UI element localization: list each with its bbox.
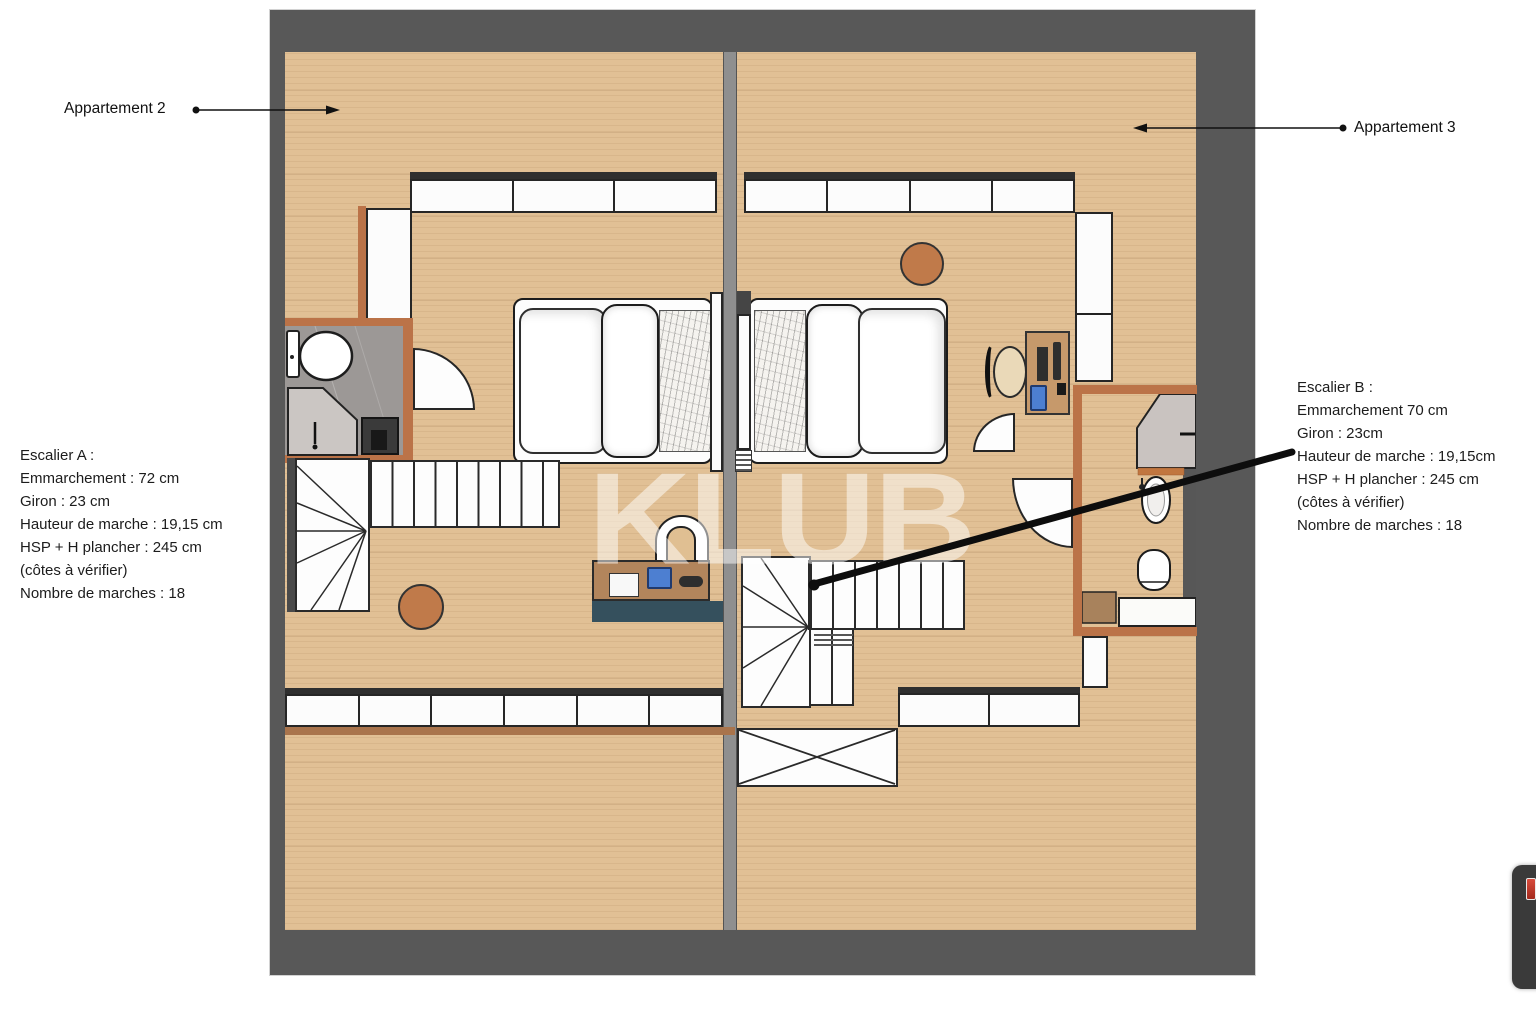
stair-b-line: Emmarchement 70 cm [1297, 399, 1495, 422]
wardrobe-box [989, 693, 1080, 727]
wardrobe-box [898, 693, 989, 727]
desk-apartment2 [592, 560, 710, 601]
bathroom-b-wall-top [1073, 385, 1197, 394]
bathroom-b [1082, 394, 1196, 627]
stair-b-lower-steps [809, 628, 854, 706]
duvet [858, 308, 946, 454]
wardrobe-box [614, 179, 717, 213]
stair-b-line: HSP + H plancher : 245 cm [1297, 468, 1495, 491]
stair-b-handrail [814, 633, 853, 646]
stair-a-line: Nombre de marches : 18 [20, 582, 223, 605]
stair-b-title: Escalier B : [1297, 376, 1495, 399]
wardrobe-box [504, 694, 577, 727]
bathroom-b-door-leaf [1082, 636, 1108, 688]
leader-dot [1340, 125, 1347, 132]
desk-shelf [1053, 342, 1061, 380]
wardrobe-base-strip [285, 727, 735, 735]
headboard-panel-right [737, 314, 751, 450]
bathroom-a-wall-top [285, 318, 412, 326]
speaker [1057, 383, 1066, 395]
stair-a-wall [287, 458, 295, 612]
desk-apartment3 [1025, 331, 1070, 415]
wardrobe-box [513, 179, 615, 213]
wardrobe-box [649, 694, 723, 727]
toilet [1138, 550, 1170, 590]
stair-a-line: Emmarchement : 72 cm [20, 467, 223, 490]
wardrobe-row-apartment2-top [410, 179, 717, 213]
wardrobe-row-apartment3-top [744, 179, 1075, 213]
toilet [300, 332, 352, 380]
apartment3-label: Appartement 3 [1354, 119, 1456, 137]
stair-b-winder [741, 556, 811, 708]
wardrobe-top-edge [744, 172, 1075, 179]
wardrobe-top-edge [410, 172, 717, 179]
bathroom-a [285, 326, 405, 456]
desk-rug [592, 601, 723, 622]
stair-a-title: Escalier A : [20, 444, 223, 467]
wall-nook [737, 291, 751, 314]
monitor [1037, 347, 1048, 381]
wardrobe-box [577, 694, 650, 727]
leader-dot [193, 107, 200, 114]
stair-b-line: (côtes à vérifier) [1297, 491, 1495, 514]
wardrobe-box [992, 179, 1075, 213]
interior-wall [358, 206, 366, 324]
chair-apartment2 [655, 515, 709, 565]
bed-apartment2 [513, 298, 713, 464]
vent-grille [735, 450, 752, 472]
stool-apartment3 [900, 242, 944, 286]
wardrobe-box [744, 179, 827, 213]
stair-a-note: Escalier A : Emmarchement : 72 cm Giron … [20, 444, 223, 605]
laptop [647, 567, 672, 589]
wardrobe-box [910, 179, 992, 213]
pillow [806, 304, 864, 458]
bed-linen-sketch [659, 310, 711, 452]
stool-apartment2 [398, 584, 444, 630]
stair-b-run [808, 560, 965, 630]
bathroom-b-wall-bottom [1073, 627, 1197, 636]
wardrobe-row-apartment3-bottom [898, 693, 1080, 727]
red-badge-icon [1526, 878, 1536, 900]
vanity-box [1082, 592, 1116, 623]
stair-a-line: Hauteur de marche : 19,15 cm [20, 513, 223, 536]
closet-apartment2 [366, 208, 412, 320]
shower-curb [1138, 468, 1184, 475]
stair-a-line: HSP + H plancher : 245 cm [20, 536, 223, 559]
bed-linen-sketch [754, 310, 806, 452]
apartment2-label: Appartement 2 [64, 100, 166, 118]
laptop [1030, 385, 1047, 411]
counter [1119, 598, 1196, 626]
stair-b-line: Giron : 23cm [1297, 422, 1495, 445]
bathroom-b-wall-left [1073, 394, 1082, 636]
stair-a-line: (côtes à vérifier) [20, 559, 223, 582]
desk-accessory [679, 576, 703, 587]
duvet [519, 308, 607, 454]
stair-a-winder [295, 458, 370, 612]
paper [609, 573, 639, 597]
chair-back [985, 344, 999, 400]
wardrobe-box [359, 694, 432, 727]
stair-a-line: Giron : 23 cm [20, 490, 223, 513]
wardrobe-row-apartment2-bottom [285, 694, 723, 727]
wardrobe-box [410, 179, 513, 213]
stair-b-note: Escalier B : Emmarchement 70 cm Giron : … [1297, 376, 1495, 537]
stair-a-run [368, 460, 560, 528]
floating-action-button[interactable] [1512, 865, 1536, 989]
closet-shelf-line [1077, 214, 1111, 315]
wardrobe-box [431, 694, 504, 727]
shower [1137, 394, 1196, 468]
wardrobe-box [827, 179, 909, 213]
stair-b-line: Nombre de marches : 18 [1297, 514, 1495, 537]
pillow [601, 304, 659, 458]
stair-b-line: Hauteur de marche : 19,15cm [1297, 445, 1495, 468]
floor-opening-x [737, 728, 898, 787]
wardrobe-box [285, 694, 359, 727]
headboard-panel-left [710, 292, 723, 472]
toilet-tank [287, 331, 299, 377]
party-wall-divider [723, 52, 737, 930]
bed-apartment3 [748, 298, 948, 464]
closet-apartment3 [1075, 212, 1113, 382]
